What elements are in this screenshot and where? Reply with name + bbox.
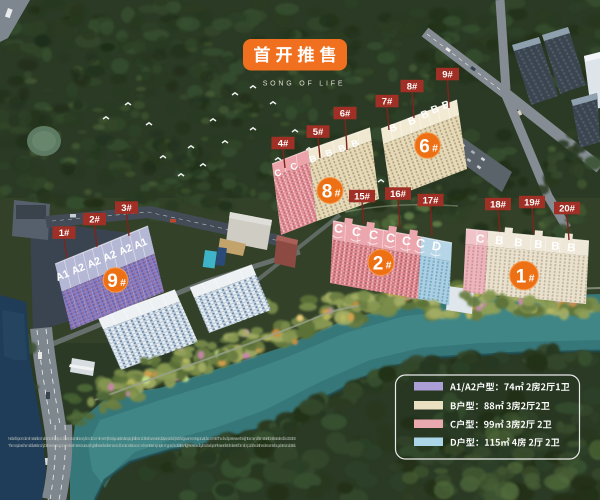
svg-text:#: # (432, 143, 438, 155)
svg-text:C: C (385, 231, 396, 246)
svg-text:2: 2 (373, 253, 384, 274)
svg-text:C: C (476, 233, 485, 246)
svg-text:B: B (514, 237, 523, 250)
svg-text:C: C (368, 227, 379, 242)
svg-text:#: # (120, 277, 126, 289)
svg-text:C: C (415, 236, 426, 251)
svg-text:20#: 20# (559, 203, 576, 214)
svg-text:The map is a schematic illustr: The map is a schematic illustration only… (8, 443, 296, 448)
svg-text:3#: 3# (121, 203, 132, 214)
svg-text:5#: 5# (313, 127, 324, 138)
svg-text:9: 9 (107, 271, 118, 292)
svg-text:#: # (529, 273, 535, 285)
svg-text:SONG OF LIFE: SONG OF LIFE (263, 81, 346, 88)
svg-text:19#: 19# (524, 197, 541, 208)
svg-text:17#: 17# (423, 195, 440, 206)
svg-text:C: C (333, 221, 344, 236)
svg-text:9#: 9# (442, 69, 453, 80)
svg-text:C: C (401, 233, 412, 248)
svg-text:8#: 8# (407, 81, 418, 92)
svg-text:7#: 7# (382, 96, 393, 107)
svg-text:2#: 2# (89, 214, 100, 225)
svg-text:1#: 1# (59, 228, 70, 239)
svg-text:C: C (351, 224, 362, 239)
svg-text:8: 8 (322, 181, 333, 202)
svg-text:16#: 16# (390, 189, 407, 200)
svg-text:4#: 4# (278, 138, 289, 149)
svg-text:18#: 18# (490, 199, 507, 210)
svg-text:1: 1 (516, 266, 527, 287)
svg-text:B: B (567, 242, 576, 255)
svg-text:15#: 15# (354, 191, 371, 202)
svg-text:#: # (335, 188, 341, 200)
svg-text:#: # (386, 260, 392, 272)
svg-text:B: B (495, 235, 504, 248)
svg-text:6: 6 (419, 136, 430, 157)
svg-text:D: D (431, 239, 442, 254)
svg-text:B: B (551, 240, 560, 253)
svg-text:6#: 6# (340, 108, 351, 119)
svg-text:B: B (534, 239, 543, 252)
svg-text:Notice: this promotional mater: Notice: this promotional material is an … (8, 436, 297, 441)
